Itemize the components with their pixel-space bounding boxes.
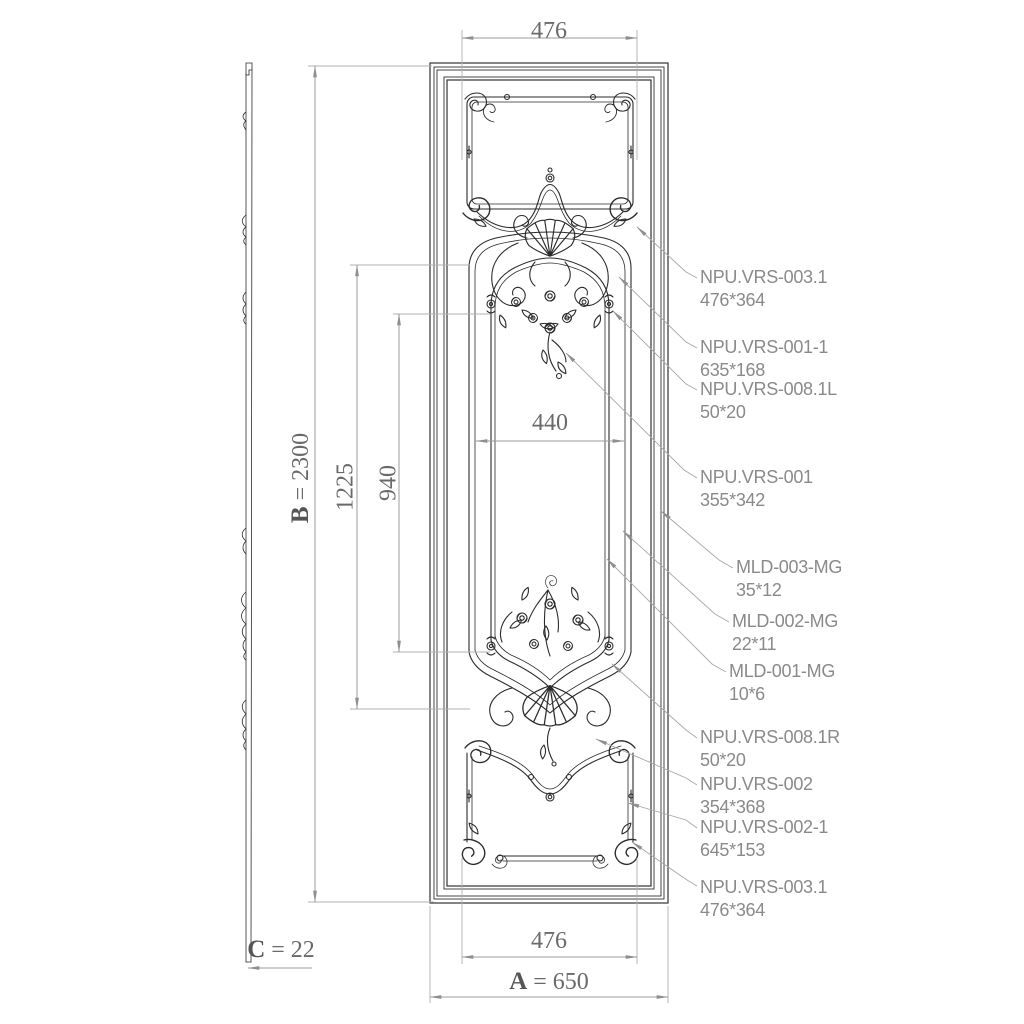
front-view-frame bbox=[430, 63, 668, 903]
bottom-cartouche bbox=[490, 575, 611, 766]
callout-npu-vrs-003-1-top: NPU.VRS-003.1476*364 bbox=[700, 266, 827, 312]
callout-npu-vrs-002-1: NPU.VRS-002-1645*153 bbox=[700, 816, 828, 862]
callout-npu-vrs-008-1r: NPU.VRS-008.1R50*20 bbox=[700, 726, 840, 772]
callout-mld-002-mg: MLD-002-MG22*11 bbox=[732, 610, 838, 656]
side-view bbox=[242, 63, 253, 962]
callout-npu-vrs-001-1: NPU.VRS-001-1635*168 bbox=[700, 336, 828, 382]
drawing-canvas bbox=[0, 0, 1024, 1024]
top-ornament-frame bbox=[463, 93, 637, 229]
callout-npu-vrs-001: NPU.VRS-001355*342 bbox=[700, 466, 813, 512]
callout-npu-vrs-008-1l: NPU.VRS-008.1L50*20 bbox=[700, 378, 837, 424]
top-swag bbox=[477, 168, 623, 231]
callout-mld-001-mg: MLD-001-MG10*6 bbox=[729, 660, 835, 706]
bottom-swag bbox=[465, 741, 635, 801]
dim-1225: 1225 bbox=[333, 463, 360, 511]
bottom-ornament-frame bbox=[454, 753, 645, 869]
callout-npu-vrs-003-1-bottom: NPU.VRS-003.1476*364 bbox=[700, 876, 827, 922]
top-cartouche bbox=[492, 216, 609, 379]
dim-inner-width: 440 bbox=[532, 410, 568, 437]
dim-thickness: C = 22 bbox=[247, 936, 315, 964]
dim-overall-height: B = 2300 bbox=[287, 433, 315, 523]
dim-overall-width: A = 650 bbox=[509, 968, 589, 996]
middle-panel-moldings bbox=[469, 232, 631, 713]
dim-bottom-width: 476 bbox=[531, 928, 567, 955]
callout-mld-003-mg: MLD-003-MG35*12 bbox=[736, 556, 842, 602]
drawing-sheet: 476 B = 2300 1225 940 440 476 A = 650 C … bbox=[0, 0, 1024, 1024]
callout-npu-vrs-002: NPU.VRS-002354*368 bbox=[700, 773, 813, 819]
dim-940: 940 bbox=[376, 465, 403, 501]
dim-top-width: 476 bbox=[531, 18, 567, 45]
